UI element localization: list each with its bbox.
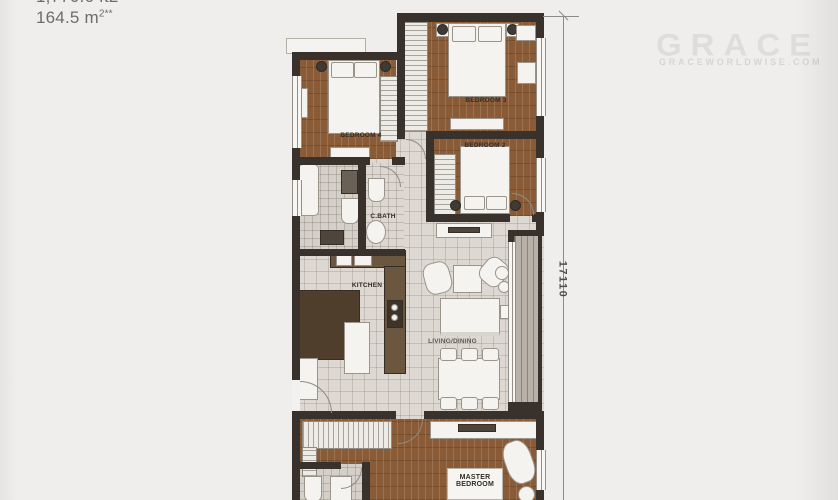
- bath-vanity: [320, 230, 344, 245]
- bedroom3-dresser: [517, 62, 536, 84]
- master-wardrobe-top: [302, 421, 392, 449]
- balcony-wall-side: [508, 236, 514, 242]
- living-coffee-table: [453, 265, 482, 293]
- dimension-extension-line: [543, 16, 579, 17]
- window-bathroom: [292, 180, 302, 216]
- kitchen-label: KITCHEN: [331, 282, 403, 289]
- living-sofa: [440, 298, 500, 336]
- window-bedroom4: [292, 76, 302, 148]
- living-plant-pot-1: [495, 266, 509, 280]
- wall-bath-divider: [358, 157, 366, 255]
- wall-right-5: [536, 490, 544, 500]
- bedroom3-bench: [450, 118, 504, 130]
- dining-chair-6: [482, 397, 499, 410]
- bedroom2-label: BEDROOM 2: [449, 142, 521, 149]
- kitchen-island: [344, 322, 370, 374]
- wall-bedroom2-bottom-a: [426, 214, 510, 222]
- bedroom3-wardrobe: [404, 22, 428, 132]
- area-value: 164.5 m: [36, 8, 99, 27]
- bath-shower: [341, 170, 358, 194]
- bedroom3-pillow-right: [478, 26, 502, 42]
- wall-bedroom4-bottom-b: [392, 157, 405, 165]
- wall-top-left: [292, 52, 405, 60]
- wall-bedroom2-left: [426, 131, 434, 222]
- bedroom4-lamp-left: [316, 61, 327, 72]
- living-tv: [448, 227, 480, 233]
- dining-chair-5: [461, 397, 478, 410]
- bedroom3-pillow-left: [452, 26, 476, 42]
- dining-chair-4: [440, 397, 457, 410]
- kitchen-stove-burner-2: [391, 314, 398, 321]
- wall-left-1: [292, 52, 300, 76]
- wall-bedroom2-bottom-b: [532, 214, 544, 222]
- window-master: [536, 450, 546, 490]
- bedroom2-pillow-left: [464, 196, 485, 210]
- wall-master-bath-side: [362, 462, 370, 500]
- wall-bath-bottom: [292, 249, 405, 256]
- wall-top-bedroom3: [397, 13, 544, 22]
- living-dining-label: LIVING/DINING: [410, 338, 495, 345]
- bedroom3-ac-unit: [516, 25, 536, 41]
- cbath-label: C.BATH: [357, 213, 409, 220]
- bath-toilet: [341, 198, 359, 224]
- cbath-sink: [366, 220, 386, 244]
- floor-plan-image: 1,770.6 ft2** 164.5 m2** GRACE GRACEWORL…: [0, 0, 838, 500]
- kitchen-stove-burner-1: [391, 304, 398, 311]
- wall-left-4: [292, 412, 300, 500]
- master-bath-toilet: [304, 476, 322, 500]
- dimension-value: 17110: [536, 255, 591, 305]
- wall-left-3: [292, 216, 300, 380]
- bedroom3-label: BEDROOM 3: [450, 97, 522, 104]
- master-ottoman: [518, 486, 535, 500]
- bedroom4-label: BEDROOM 4: [325, 132, 397, 139]
- entry-door-opening: [292, 380, 300, 412]
- window-bedroom2: [536, 158, 546, 212]
- wall-master-top-b: [424, 411, 544, 419]
- bedroom3-lamp-left: [437, 24, 448, 35]
- window-bedroom3: [536, 38, 546, 116]
- bedroom2-pillow-right: [486, 196, 507, 210]
- dining-chair-3: [482, 348, 499, 361]
- bedroom4-pillow-right: [354, 62, 377, 78]
- master-bedroom-label-line1: MASTER: [460, 474, 491, 481]
- wall-bedroom3-left: [397, 13, 405, 139]
- dining-chair-1: [440, 348, 457, 361]
- dining-table: [438, 358, 500, 400]
- balcony-sliding-door: [508, 242, 516, 402]
- area-text-top-clipped: 1,770.6 ft2**: [36, 0, 132, 7]
- grace-website-text: GRACEWORLDWISE.COM: [659, 57, 822, 67]
- area-text-sqm: 164.5 m2**: [36, 8, 113, 28]
- master-bedroom-label-box: MASTER BEDROOM: [447, 468, 503, 500]
- bedroom4-pillow-left: [331, 62, 354, 78]
- wall-master-bath-top: [300, 462, 341, 469]
- master-tv: [458, 424, 496, 432]
- wall-bedroom2-top: [426, 131, 544, 139]
- bedroom4-lamp-right: [380, 61, 391, 72]
- master-bedroom-label-line2: BEDROOM: [456, 481, 494, 488]
- bedroom2-lamp-left: [450, 200, 461, 211]
- dining-chair-2: [461, 348, 478, 361]
- area-asterisks: **: [105, 8, 113, 19]
